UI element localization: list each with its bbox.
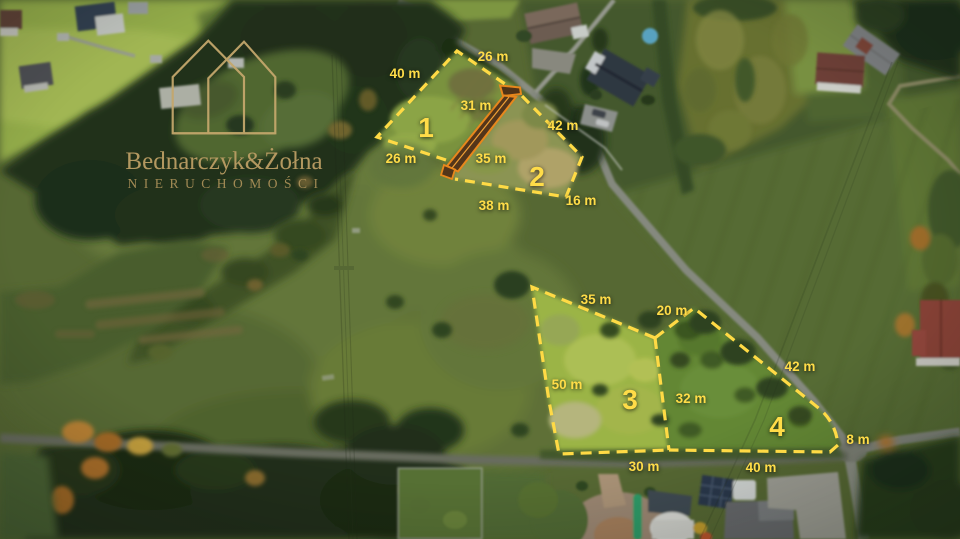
svg-text:38 m: 38 m (479, 198, 510, 213)
svg-text:32 m: 32 m (676, 391, 707, 406)
svg-text:3: 3 (622, 384, 638, 415)
svg-text:40 m: 40 m (746, 460, 777, 475)
svg-text:35 m: 35 m (476, 151, 507, 166)
svg-text:Bednarczyk&Żołna: Bednarczyk&Żołna (125, 148, 322, 175)
svg-text:42 m: 42 m (785, 359, 816, 374)
svg-text:8 m: 8 m (846, 432, 869, 447)
svg-text:40 m: 40 m (390, 66, 421, 81)
svg-text:2: 2 (529, 161, 545, 192)
svg-text:50 m: 50 m (552, 377, 583, 392)
svg-text:31 m: 31 m (461, 98, 492, 113)
svg-text:1: 1 (418, 112, 434, 143)
svg-text:26 m: 26 m (478, 49, 509, 64)
svg-text:42 m: 42 m (548, 118, 579, 133)
svg-text:26 m: 26 m (386, 151, 417, 166)
svg-text:NIERUCHOMOŚCI: NIERUCHOMOŚCI (127, 176, 324, 191)
svg-text:16 m: 16 m (566, 193, 597, 208)
svg-text:20 m: 20 m (657, 303, 688, 318)
svg-text:30 m: 30 m (629, 459, 660, 474)
svg-text:4: 4 (769, 411, 785, 442)
svg-text:35 m: 35 m (581, 292, 612, 307)
